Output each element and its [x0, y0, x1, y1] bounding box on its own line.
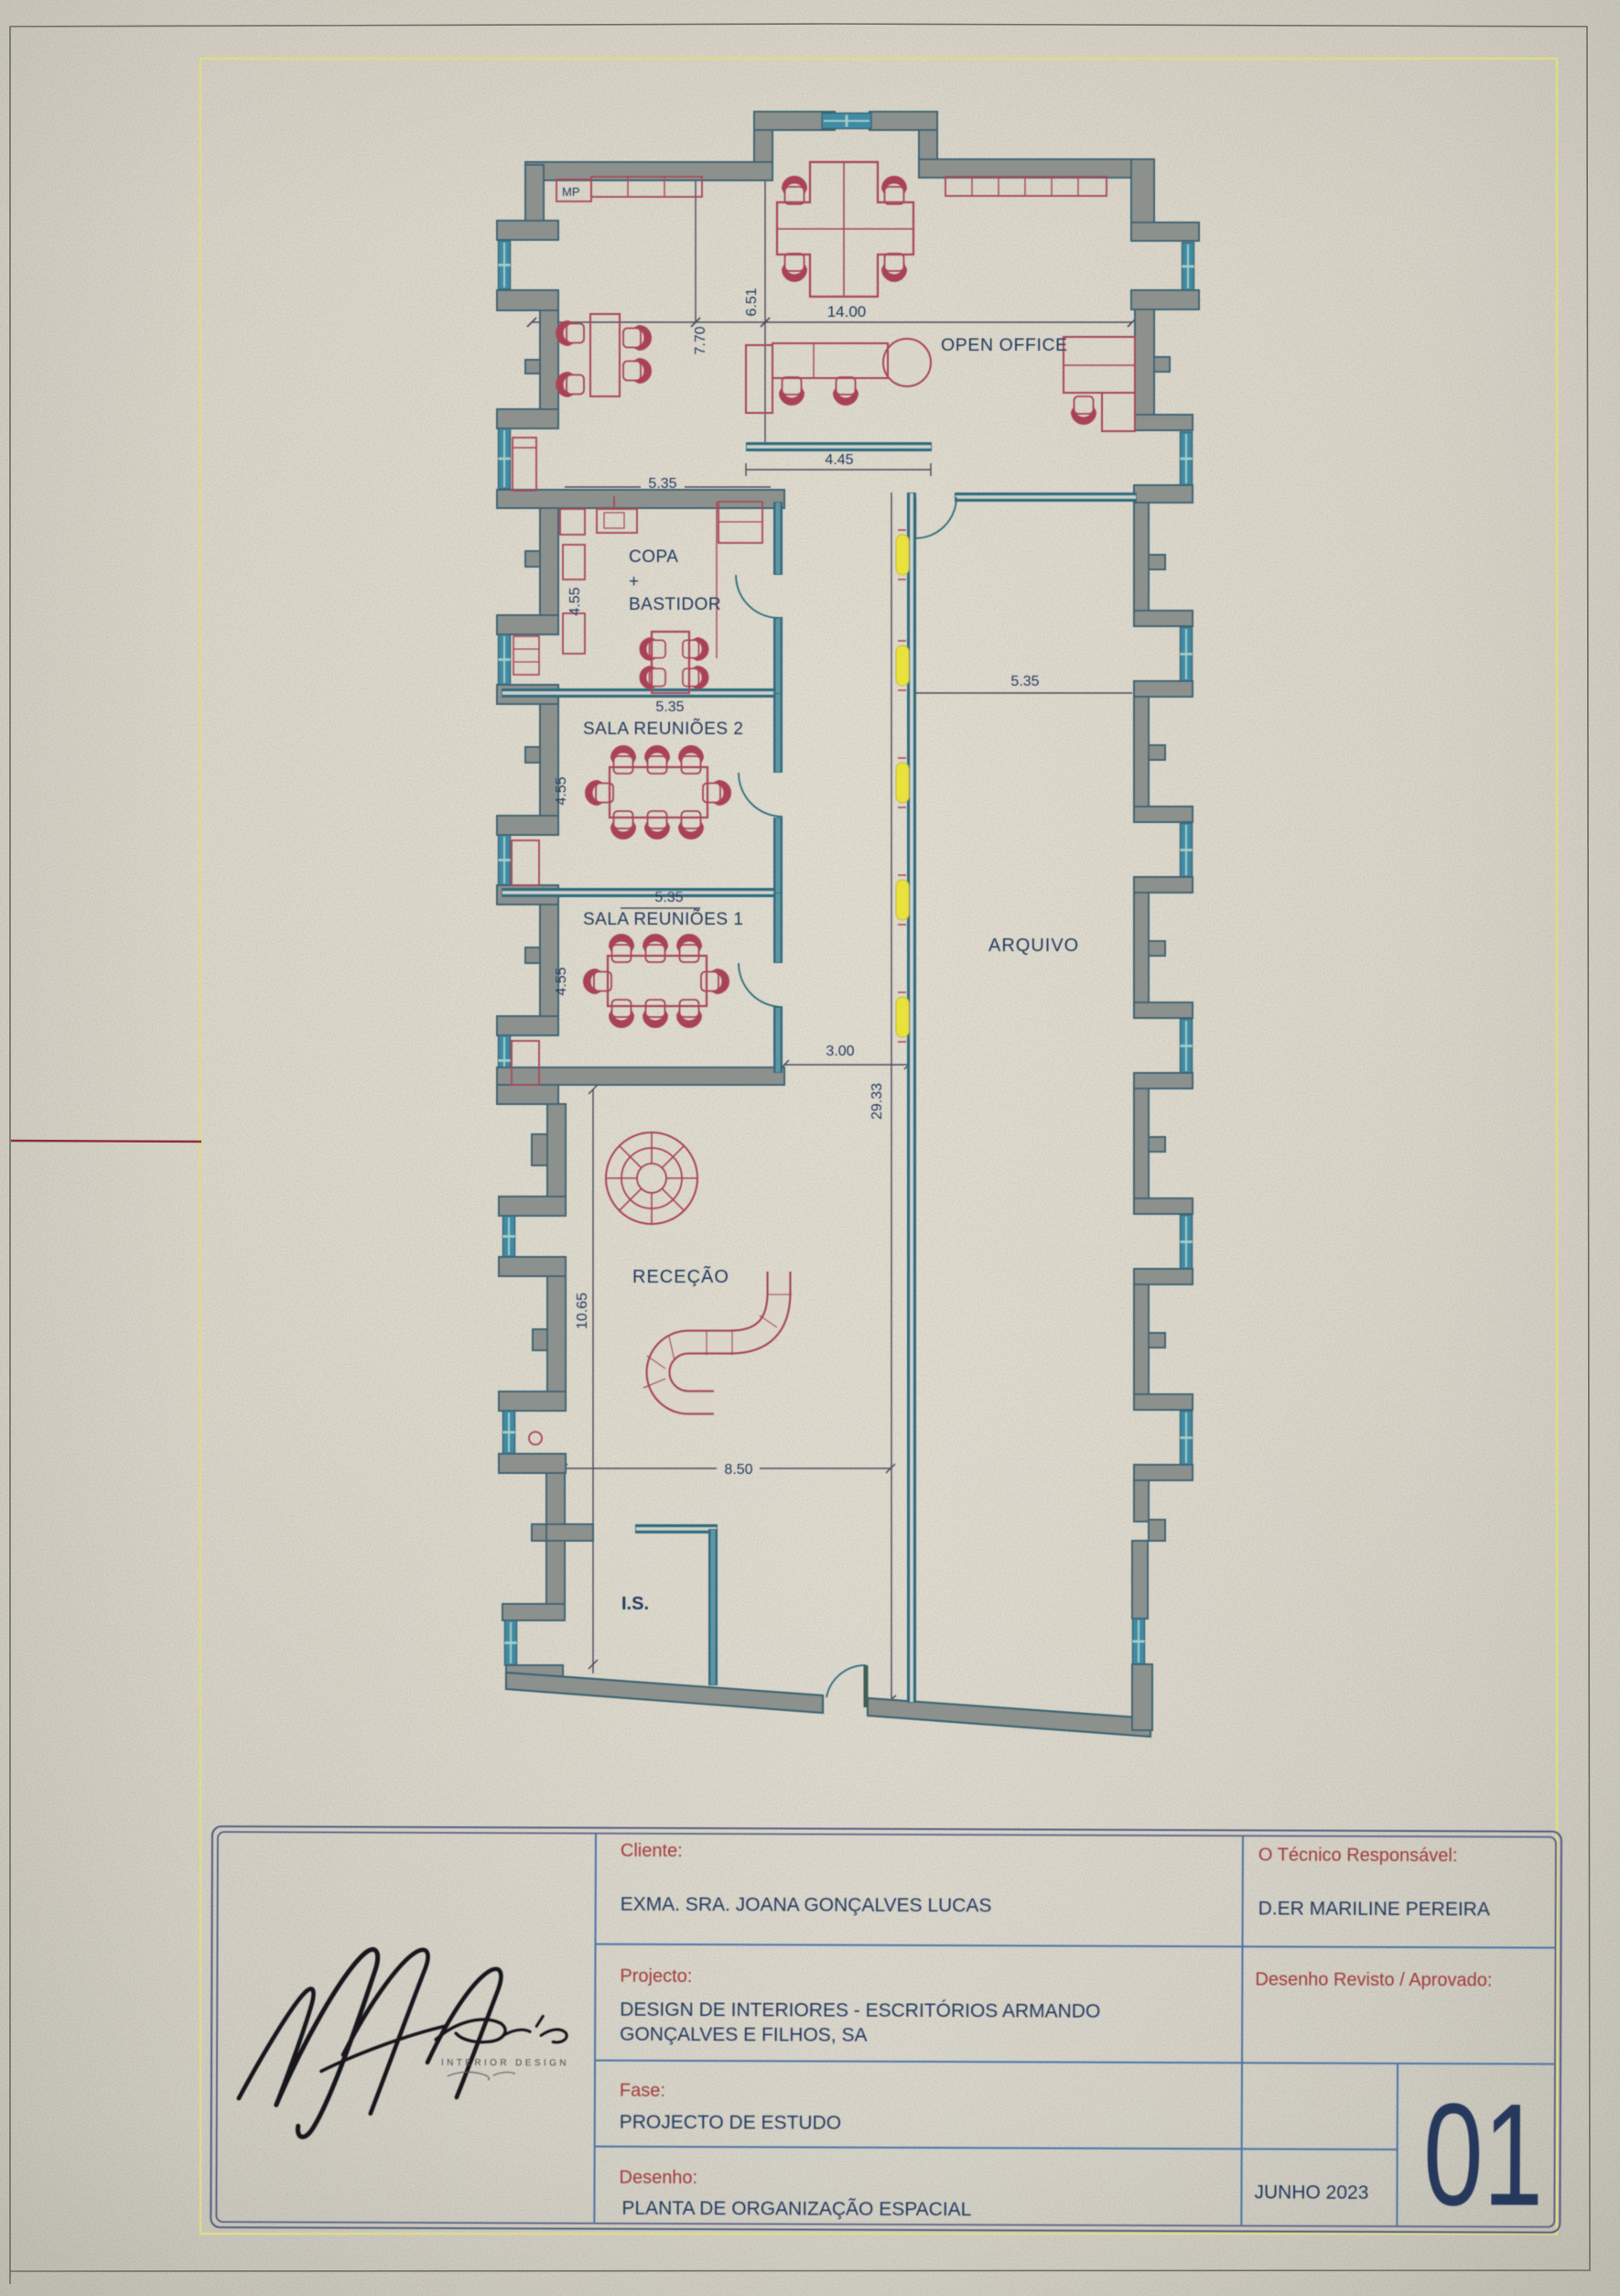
svg-text:COPA: COPA [629, 547, 678, 567]
svg-text:BASTIDOR: BASTIDOR [629, 595, 721, 614]
svg-text:PLANTA DE ORGANIZAÇÃO ESPACIAL: PLANTA DE ORGANIZAÇÃO ESPACIAL [621, 2197, 971, 2220]
svg-text:Projecto:: Projecto: [620, 1966, 692, 1987]
svg-text:SALA REUNIÕES 1: SALA REUNIÕES 1 [583, 909, 743, 929]
svg-text:4.55: 4.55 [554, 776, 569, 805]
svg-text:EXMA. SRA. JOANA GONÇALVES LUC: EXMA. SRA. JOANA GONÇALVES LUCAS [621, 1894, 992, 1917]
svg-text:D.ER MARILINE PEREIRA: D.ER MARILINE PEREIRA [1258, 1898, 1490, 1920]
svg-text:Cliente:: Cliente: [621, 1841, 683, 1861]
svg-text:3.00: 3.00 [826, 1044, 854, 1059]
svg-text:4.55: 4.55 [567, 587, 583, 615]
svg-text:4.45: 4.45 [825, 452, 853, 468]
svg-text:GONÇALVES E FILHOS, SA: GONÇALVES E FILHOS, SA [620, 2024, 867, 2046]
svg-text:Desenho Revisto / Aprovado:: Desenho Revisto / Aprovado: [1255, 1969, 1492, 1990]
svg-text:01: 01 [1423, 2073, 1544, 2236]
svg-text:7.70: 7.70 [693, 326, 708, 354]
svg-text:14.00: 14.00 [827, 303, 867, 320]
svg-text:RECEÇÃO: RECEÇÃO [632, 1265, 729, 1287]
svg-text:5.35: 5.35 [654, 890, 683, 905]
svg-text:SALA REUNIÕES 2: SALA REUNIÕES 2 [583, 719, 743, 739]
svg-text:5.35: 5.35 [648, 476, 676, 492]
svg-text:5.35: 5.35 [1010, 674, 1039, 689]
svg-text:6.51: 6.51 [744, 287, 760, 316]
svg-text:I.S.: I.S. [621, 1594, 649, 1614]
svg-text:O Técnico Responsável:: O Técnico Responsável: [1258, 1845, 1458, 1866]
svg-text:JUNHO 2023: JUNHO 2023 [1254, 2182, 1368, 2203]
svg-text:+: + [629, 572, 639, 591]
svg-text:MP: MP [562, 185, 580, 199]
svg-text:PROJECTO DE ESTUDO: PROJECTO DE ESTUDO [620, 2112, 841, 2134]
svg-text:INTERIOR DESIGN: INTERIOR DESIGN [441, 2058, 569, 2069]
svg-text:10.65: 10.65 [575, 1293, 590, 1329]
svg-text:4.55: 4.55 [554, 967, 569, 995]
svg-text:8.50: 8.50 [724, 1462, 752, 1478]
svg-text:29.33: 29.33 [869, 1083, 885, 1120]
svg-text:Desenho:: Desenho: [619, 2168, 697, 2188]
svg-text:DESIGN DE INTERIORES - ESCRITÓ: DESIGN DE INTERIORES - ESCRITÓRIOS ARMAN… [620, 1999, 1100, 2022]
svg-text:ARQUIVO: ARQUIVO [988, 936, 1079, 956]
svg-text:5.35: 5.35 [655, 699, 684, 715]
svg-text:Fase:: Fase: [620, 2081, 665, 2101]
svg-text:OPEN OFFICE: OPEN OFFICE [941, 335, 1068, 355]
